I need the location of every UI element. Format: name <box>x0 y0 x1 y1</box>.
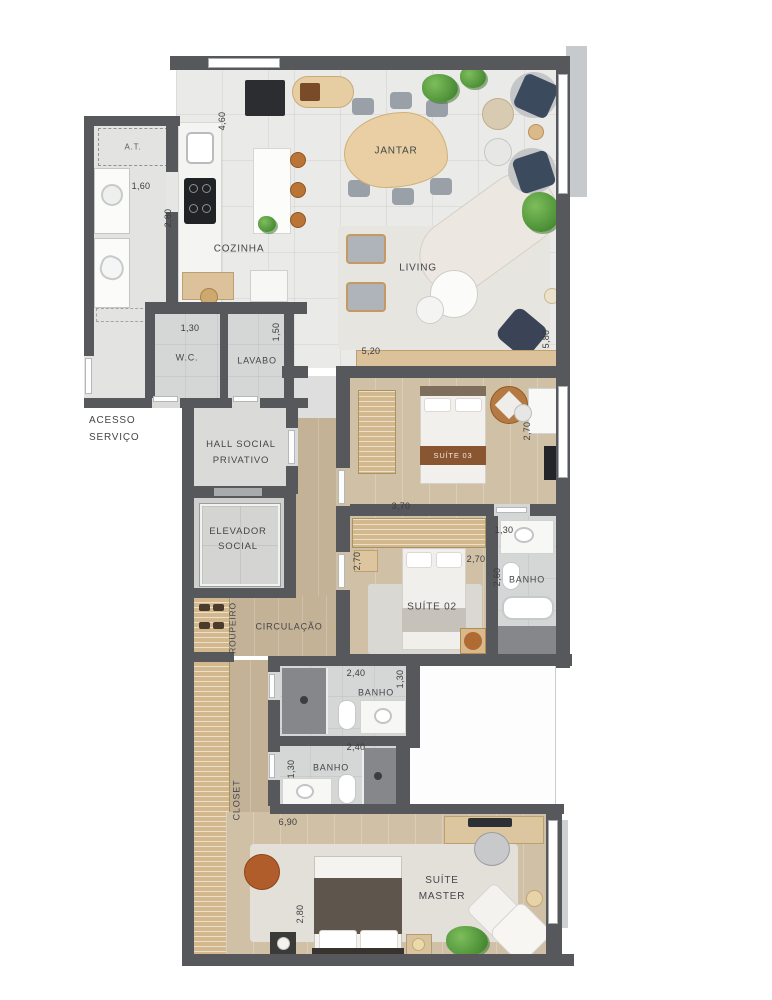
dimension: 2,70 <box>352 552 362 571</box>
room-label-circulacao: CIRCULAÇÃO <box>255 620 322 635</box>
door-opening <box>166 172 178 212</box>
dimension: 3,70 <box>392 501 411 511</box>
wall <box>486 516 498 664</box>
door-leaf <box>338 554 345 588</box>
floor-lamp <box>526 890 543 907</box>
stool <box>290 152 306 168</box>
headboard-panel-suite-02 <box>352 518 486 548</box>
dimension: 1,30 <box>395 670 405 689</box>
room-label-suite02: SUÍTE 02 <box>407 600 457 615</box>
stool <box>290 212 306 228</box>
sideboard <box>356 350 558 367</box>
dimension: 5,20 <box>362 346 381 356</box>
room-label-suite-master: SUÍTE MASTER <box>407 873 477 905</box>
wall <box>406 656 420 748</box>
wall <box>182 398 194 964</box>
shoes <box>213 604 224 611</box>
room-label-acesso-servico: ACESSO SERVIÇO <box>89 412 153 446</box>
dimension: 1,30 <box>286 760 296 779</box>
door-leaf <box>496 507 527 513</box>
plant <box>258 216 276 232</box>
dining-chair <box>390 92 412 109</box>
window <box>208 58 280 68</box>
cooktop-burner <box>189 204 198 213</box>
shower-drain <box>300 696 308 704</box>
plant <box>422 74 458 102</box>
dining-chair <box>352 98 374 115</box>
wall <box>284 486 296 598</box>
banho03-basin <box>514 527 534 543</box>
bed-pillow <box>360 930 398 950</box>
cooktop <box>184 178 216 224</box>
window <box>558 386 568 478</box>
room-label-cozinha: COZINHA <box>214 242 265 257</box>
cooktop-burner <box>202 204 211 213</box>
window <box>558 74 568 194</box>
kitchen-sink <box>186 132 214 164</box>
banho-inf-toilet <box>338 774 356 804</box>
banho03-tub <box>502 596 554 620</box>
dimension: 2,40 <box>347 668 366 678</box>
door-leaf <box>269 674 275 698</box>
monitor <box>468 818 512 827</box>
office-chair <box>474 832 510 866</box>
plant <box>522 192 560 232</box>
oven-column <box>245 80 285 116</box>
lamp <box>277 937 290 950</box>
lamp <box>412 938 425 951</box>
dimension: 1,60 <box>132 181 151 191</box>
door-leaf <box>85 358 92 394</box>
stool <box>290 182 306 198</box>
pouf-orange <box>244 854 280 890</box>
bed-master-blanket <box>314 878 402 934</box>
desk-chair <box>514 404 532 422</box>
bed-runner-suite-03: SUÍTE 03 <box>420 446 486 465</box>
door-leaf <box>233 396 258 402</box>
wall <box>182 588 296 598</box>
room-label-wc: W.C. <box>176 351 199 366</box>
banho-sup-basin <box>374 708 392 724</box>
room-label-banho-inf: BANHO <box>313 761 349 776</box>
wall <box>220 314 228 402</box>
banho03-shower <box>498 626 556 654</box>
shower-drain <box>374 772 382 780</box>
bed-pillow <box>424 398 451 412</box>
room-label-roupeiro: ROUPEIRO <box>226 602 241 654</box>
side-table <box>484 138 512 166</box>
dimension: 2,80 <box>295 905 305 924</box>
room-label-banho-suite03: BANHO <box>509 573 545 588</box>
wall <box>396 746 410 814</box>
side-table <box>482 98 514 130</box>
armchair-wood <box>346 234 386 264</box>
wall <box>145 302 307 314</box>
fridge <box>250 270 288 302</box>
side-table-small <box>528 124 544 140</box>
floor-plan-canvas: SUÍTE 03 <box>0 0 772 1000</box>
wall <box>84 398 308 408</box>
dimension: 1,30 <box>181 323 200 333</box>
wall <box>342 504 570 516</box>
plant <box>446 926 488 956</box>
banho-sup-toilet <box>338 700 356 730</box>
grill-grid <box>300 83 320 101</box>
dimension: 6,90 <box>279 817 298 827</box>
door-leaf <box>153 396 178 402</box>
bed-suite-03-headboard <box>420 386 486 396</box>
armchair-wood <box>346 282 386 312</box>
tv-panel <box>544 446 556 480</box>
closet-wardrobe <box>192 660 230 958</box>
suite-03-label: SUÍTE 03 <box>434 451 473 460</box>
cooktop-burner <box>202 184 211 193</box>
room-label-lavabo: LAVABO <box>237 354 276 369</box>
roupeiro-cabinet <box>192 596 230 654</box>
room-label-hall-social: HALL SOCIAL PRIVATIVO <box>191 437 291 469</box>
dimension: 5,80 <box>541 330 551 349</box>
dining-chair <box>426 100 448 117</box>
wall <box>182 954 574 966</box>
room-label-elevador: ELEVADOR SOCIAL <box>191 524 285 554</box>
door-leaf <box>269 754 275 778</box>
wall <box>336 378 350 666</box>
shoes <box>199 622 210 629</box>
dimension: 1,50 <box>271 323 281 342</box>
bed-pillow <box>436 552 462 568</box>
wall <box>342 654 572 666</box>
dimension: 2,70 <box>467 554 486 564</box>
dimension: 2,60 <box>492 568 502 587</box>
service-overhead-dashed <box>96 308 148 322</box>
dimension: 2,40 <box>347 742 366 752</box>
wall <box>166 116 178 174</box>
room-label-living: LIVING <box>399 261 437 276</box>
bed-pillow <box>319 930 357 950</box>
shoes <box>213 622 224 629</box>
room-label-banho-sup: BANHO <box>358 686 394 701</box>
wall <box>145 302 155 408</box>
bed-pillow <box>455 398 482 412</box>
wardrobe-suite-03 <box>358 390 396 474</box>
window <box>548 820 558 924</box>
wall <box>284 302 294 408</box>
wall <box>336 366 570 378</box>
dimension: 1,30 <box>495 525 514 535</box>
dining-chair <box>392 188 414 205</box>
washer-door <box>101 184 123 206</box>
wall <box>268 736 410 746</box>
room-label-jantar: JANTAR <box>375 144 418 159</box>
corridor-wood-floor <box>294 418 338 596</box>
dimension: 4,60 <box>217 112 227 131</box>
dimension: 2,80 <box>163 209 173 228</box>
door-leaf <box>338 470 345 504</box>
terrace <box>406 662 556 812</box>
cooktop-burner <box>189 184 198 193</box>
dining-chair <box>430 178 452 195</box>
shoes <box>199 604 210 611</box>
elevator-doors <box>214 488 262 496</box>
coffee-table-small <box>416 296 444 324</box>
banho-inf-basin <box>296 784 314 799</box>
dimension: 2,70 <box>522 422 532 441</box>
room-label-at: A.T. <box>125 140 142 155</box>
room-label-closet: CLOSET <box>230 780 245 821</box>
bench-cushion <box>464 632 482 650</box>
wall <box>270 804 564 814</box>
bed-pillow <box>406 552 432 568</box>
